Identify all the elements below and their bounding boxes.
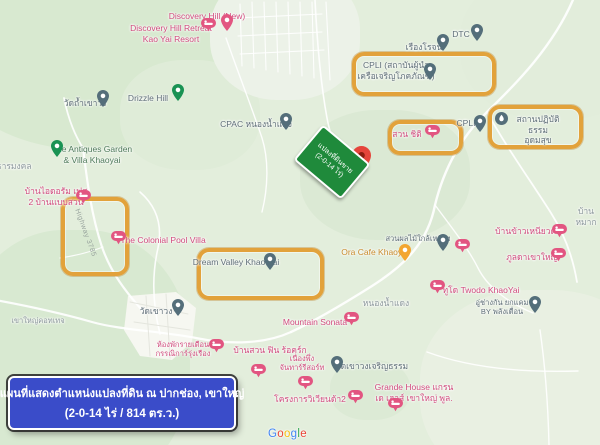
pin-wat-charoen-tham[interactable] (331, 356, 343, 378)
pin-lodging-near-fruit-garden[interactable] (455, 239, 470, 258)
pin-grande-house[interactable] (388, 398, 403, 417)
label-dtc[interactable]: DTC (452, 29, 469, 40)
label-colonial-pool-villa[interactable]: The Colonial Pool Villa (120, 235, 205, 246)
pin-baan-khao-niao-dam[interactable] (552, 224, 567, 243)
label-khaoyai-cottage[interactable]: เขาใหญ่คอทเทจ (11, 316, 64, 325)
label-baan-suan-fin[interactable]: บ้านสวน ฟิน ร้อคร์ก (233, 345, 306, 356)
label-than-mongkhon[interactable]: ธารมงคล (0, 161, 32, 172)
road (300, 2, 302, 76)
pin-discovery-hill-retreat[interactable] (201, 18, 216, 37)
road (288, 2, 290, 74)
caption-size: (2-0-14 ไร่ / 814 ตร.ว.) (65, 405, 180, 423)
label-grande-house[interactable]: Grande House แกรน เด เฮาส์ เขาใหญ่ พูล. (375, 382, 454, 403)
road (276, 2, 278, 72)
pin-vivienda2[interactable] (348, 390, 363, 409)
label-monthly-room[interactable]: ห้องพักรายเดือน กรรณิการ์รุ่งเรือง (156, 340, 211, 359)
label-mountain-sonata[interactable]: Mountain Sonata (283, 317, 347, 328)
label-twodo-khaoyai[interactable]: ทูโด Twodo KhaoYai (443, 285, 520, 296)
pin-cpli[interactable] (474, 115, 486, 137)
pin-baan-suan-fin[interactable] (251, 364, 266, 383)
pin-garage[interactable] (529, 296, 541, 318)
google-logo-letter: G (268, 428, 277, 440)
label-nong-nam-daeng[interactable]: หนองน้ำแดง (363, 298, 409, 309)
pin-monthly-room[interactable] (209, 339, 224, 358)
road (312, 2, 314, 78)
pin-cpac[interactable] (280, 113, 292, 135)
label-meditation-center[interactable]: สถานปฏิบัติธรรม อุดมสุข (507, 114, 569, 146)
google-logo[interactable]: Google (268, 428, 307, 440)
pin-drizzle-hill[interactable] (172, 84, 184, 106)
pin-wat-tham-khao-wong[interactable] (97, 90, 109, 112)
pin-baan-aidorum[interactable] (76, 190, 91, 209)
pin-wat-khao-wong2[interactable] (172, 299, 184, 321)
pin-discovery-hill-new[interactable] (221, 14, 233, 36)
road (238, 32, 322, 36)
label-drizzle-hill[interactable]: Drizzle Hill (128, 93, 168, 104)
map-caption-box: แผนที่แสดงตำแหน่งแปลงที่ดิน ณ ปากช่อง, เ… (8, 376, 236, 430)
pin-ora-cafe[interactable] (399, 244, 411, 266)
map-canvas[interactable]: Highway 3785 Discovery Hill (New)Discove… (0, 0, 600, 445)
pin-twodo-khaoyai[interactable] (430, 280, 445, 299)
caption-title: แผนที่แสดงตำแหน่งแปลงที่ดิน ณ ปากช่อง, เ… (0, 384, 244, 402)
google-logo-letter: e (300, 428, 307, 440)
google-logo-letter: o (284, 428, 291, 440)
pin-nueang-phueng-resort[interactable] (298, 376, 313, 395)
pin-phulada-khaoyai[interactable] (551, 248, 566, 267)
label-antiques-garden[interactable]: The Antiques Garden & Villa Khaoyai (52, 144, 132, 165)
road (236, 14, 322, 18)
road (540, 330, 549, 445)
pin-fruit-garden[interactable] (437, 234, 449, 256)
label-baan-mak[interactable]: บ้านหมาก (575, 206, 596, 227)
road (240, 50, 324, 54)
pin-cpli-institute[interactable] (424, 63, 436, 85)
road (326, 2, 330, 80)
label-suan-chiti[interactable]: สวน ชิติ (392, 129, 421, 140)
highlight-dream-valley (197, 248, 324, 300)
pin-rueang-rot[interactable] (437, 34, 449, 56)
road (427, 352, 578, 371)
pin-mountain-sonata[interactable] (344, 312, 359, 331)
label-vivienda2[interactable]: โครงการวิเวียนด้า2 (274, 394, 346, 405)
pin-dtc[interactable] (471, 24, 483, 46)
label-garage[interactable]: อู่ช่างกัน ยกแคม BY พลังเตื่อน (476, 298, 529, 317)
pin-antiques-garden[interactable] (51, 140, 63, 162)
pin-dream-valley[interactable] (264, 253, 276, 275)
label-wat-charoen-tham[interactable]: วัดเขาวงเจริญธรรม (336, 361, 408, 372)
road (264, 2, 266, 70)
label-nueang-phueng-resort[interactable]: เนื่องพึ่ง จันทาร์รีสอร์ท (280, 354, 325, 373)
google-logo-letter: o (277, 428, 284, 440)
label-cpli[interactable]: CPLI (457, 118, 476, 129)
label-wat-khao-wong[interactable]: วัดเขาวง (140, 306, 173, 317)
pin-colonial-pool-villa[interactable] (111, 231, 126, 250)
pin-suan-chiti[interactable] (425, 125, 440, 144)
pin-meditation-center[interactable] (495, 112, 508, 130)
